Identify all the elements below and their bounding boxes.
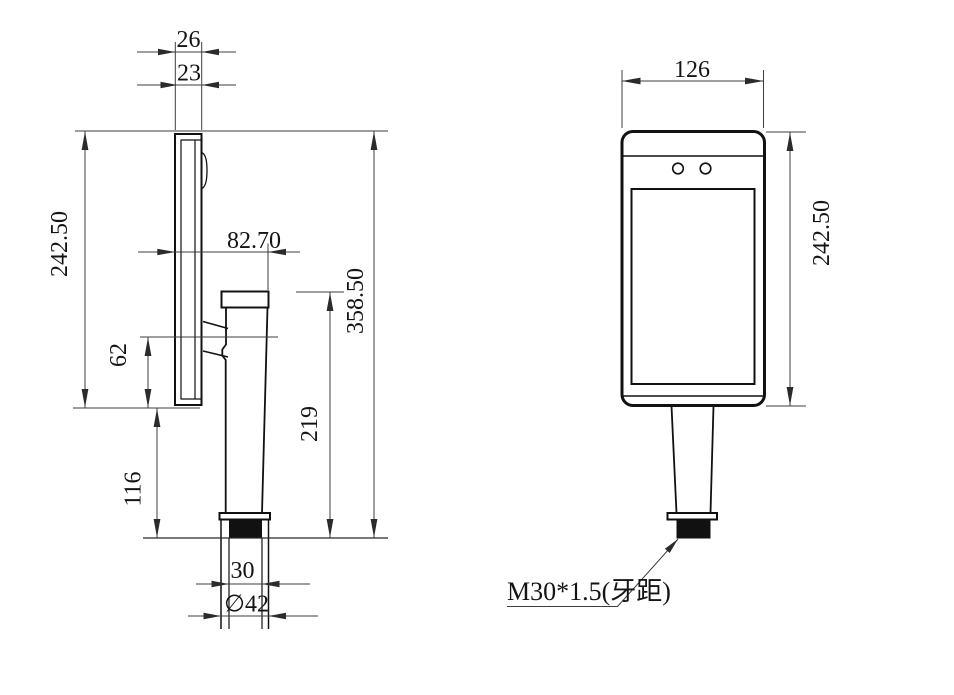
screen	[632, 189, 755, 384]
side-view-extension-lines	[73, 42, 388, 538]
thread-band	[229, 520, 262, 539]
base-flange-front	[668, 513, 718, 520]
engineering-drawing: 26 23 242.50 82.70 62 116 219	[0, 0, 954, 695]
thread-band-front	[677, 520, 711, 539]
camera-dot-right	[700, 163, 711, 174]
dim-label-242-50-side: 242.50	[47, 211, 73, 277]
dim-label-23: 23	[177, 61, 201, 87]
bracket-bottom-edge	[203, 351, 228, 357]
dim-label-358-50: 358.50	[343, 268, 369, 334]
bracket-top-edge	[203, 322, 228, 329]
device-body	[622, 132, 765, 406]
thread-note-label: M30*1.5(牙距)	[507, 577, 671, 606]
front-view: 126 242.50 M30*1.5(牙距)	[507, 57, 835, 607]
dim-label-62: 62	[106, 343, 132, 367]
dim-label-82-70: 82.70	[227, 228, 281, 254]
dim-label-242-50-front: 242.50	[809, 200, 835, 266]
side-view-panel	[174, 133, 228, 406]
pole-cap	[222, 292, 269, 308]
dim-label-diameter-42: ∅42	[224, 592, 269, 618]
front-view-pole	[668, 406, 718, 539]
front-view-dimensions: 126 242.50 M30*1.5(牙距)	[507, 57, 835, 607]
dim-label-126: 126	[674, 57, 710, 83]
base-flange	[220, 513, 271, 520]
dim-label-26: 26	[177, 27, 201, 53]
front-view-panel	[622, 132, 765, 406]
camera-dot-left	[673, 163, 684, 174]
dim-label-30: 30	[231, 558, 255, 584]
dim-label-116: 116	[121, 471, 147, 506]
side-view: 26 23 242.50 82.70 62 116 219	[47, 27, 388, 629]
dim-label-219: 219	[297, 406, 323, 442]
drawing-sheet: 26 23 242.50 82.70 62 116 219	[0, 0, 954, 695]
